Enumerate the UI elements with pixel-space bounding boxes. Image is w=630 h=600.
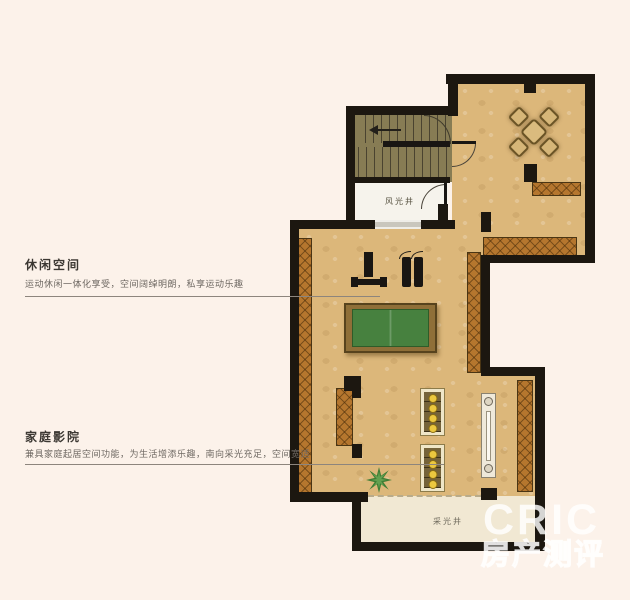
wall-stub [524,164,537,182]
theater-seat-row [420,388,445,436]
theater-leader-line [25,464,444,465]
wall [290,492,368,502]
billiard-table [344,303,437,353]
wall [346,106,458,115]
cric-watermark-tagline: 房产测评 [481,541,605,570]
gym-barbell-plate [351,277,358,287]
wall [290,220,375,229]
gym-bench-icon [364,252,373,277]
stair-door-leaf [452,141,476,144]
billiard-table-felt [352,309,429,347]
wall-stub [524,84,536,93]
wall [585,74,595,263]
screen-speaker-top [484,397,493,406]
corridor-sideboard [483,237,577,256]
wall-stub [352,389,361,398]
theater-seat-row [420,444,445,492]
wind-light-well-label: 风光井 [385,196,415,207]
treadmill-icon [402,257,411,287]
screen-band [486,411,491,461]
wall [290,222,299,502]
treadmill-icon [414,257,423,287]
leisure-description: 运动休闲一体化享受，空间阔绰明朗，私享运动乐趣 [25,277,244,290]
right-lower-cabinet [517,380,533,492]
leisure-leader-line [25,296,380,297]
screen-speaker-bottom [484,464,493,473]
floor-plan-page: 风光井 采光井 休闲空间 运动休闲一体化享受，空间阔绰明朗，私享运动乐趣 家庭影… [0,0,630,600]
stair-arrow-icon [369,125,378,135]
cric-watermark-logo: CRIC [483,499,600,542]
wall-stub [352,444,362,458]
wall [488,255,595,263]
partition-cabinet [336,388,353,446]
wall [446,74,595,84]
stair-lower-flight [358,147,450,179]
wall [352,177,450,183]
well-window-sill [373,220,422,229]
stair-direction-line [377,129,401,131]
plant-icon [366,466,392,494]
wall [481,255,490,375]
daylight-well-opening-dashed [368,495,481,497]
wall [352,497,361,551]
wall-stub [481,212,491,232]
wall [438,204,448,226]
leisure-title: 休闲空间 [25,256,81,273]
theater-title: 家庭影院 [25,428,81,445]
right-upper-cabinet [467,252,481,373]
theater-description: 兼具家庭起居空间功能，为生活增添乐趣，南向采光充足，空间宽适 [25,447,310,460]
projection-screen [481,393,496,478]
gym-barbell-plate [380,277,387,287]
wall [346,108,355,226]
daylight-well-label: 采光井 [433,516,463,527]
wall [448,74,458,116]
terrace-sideboard [532,182,581,196]
